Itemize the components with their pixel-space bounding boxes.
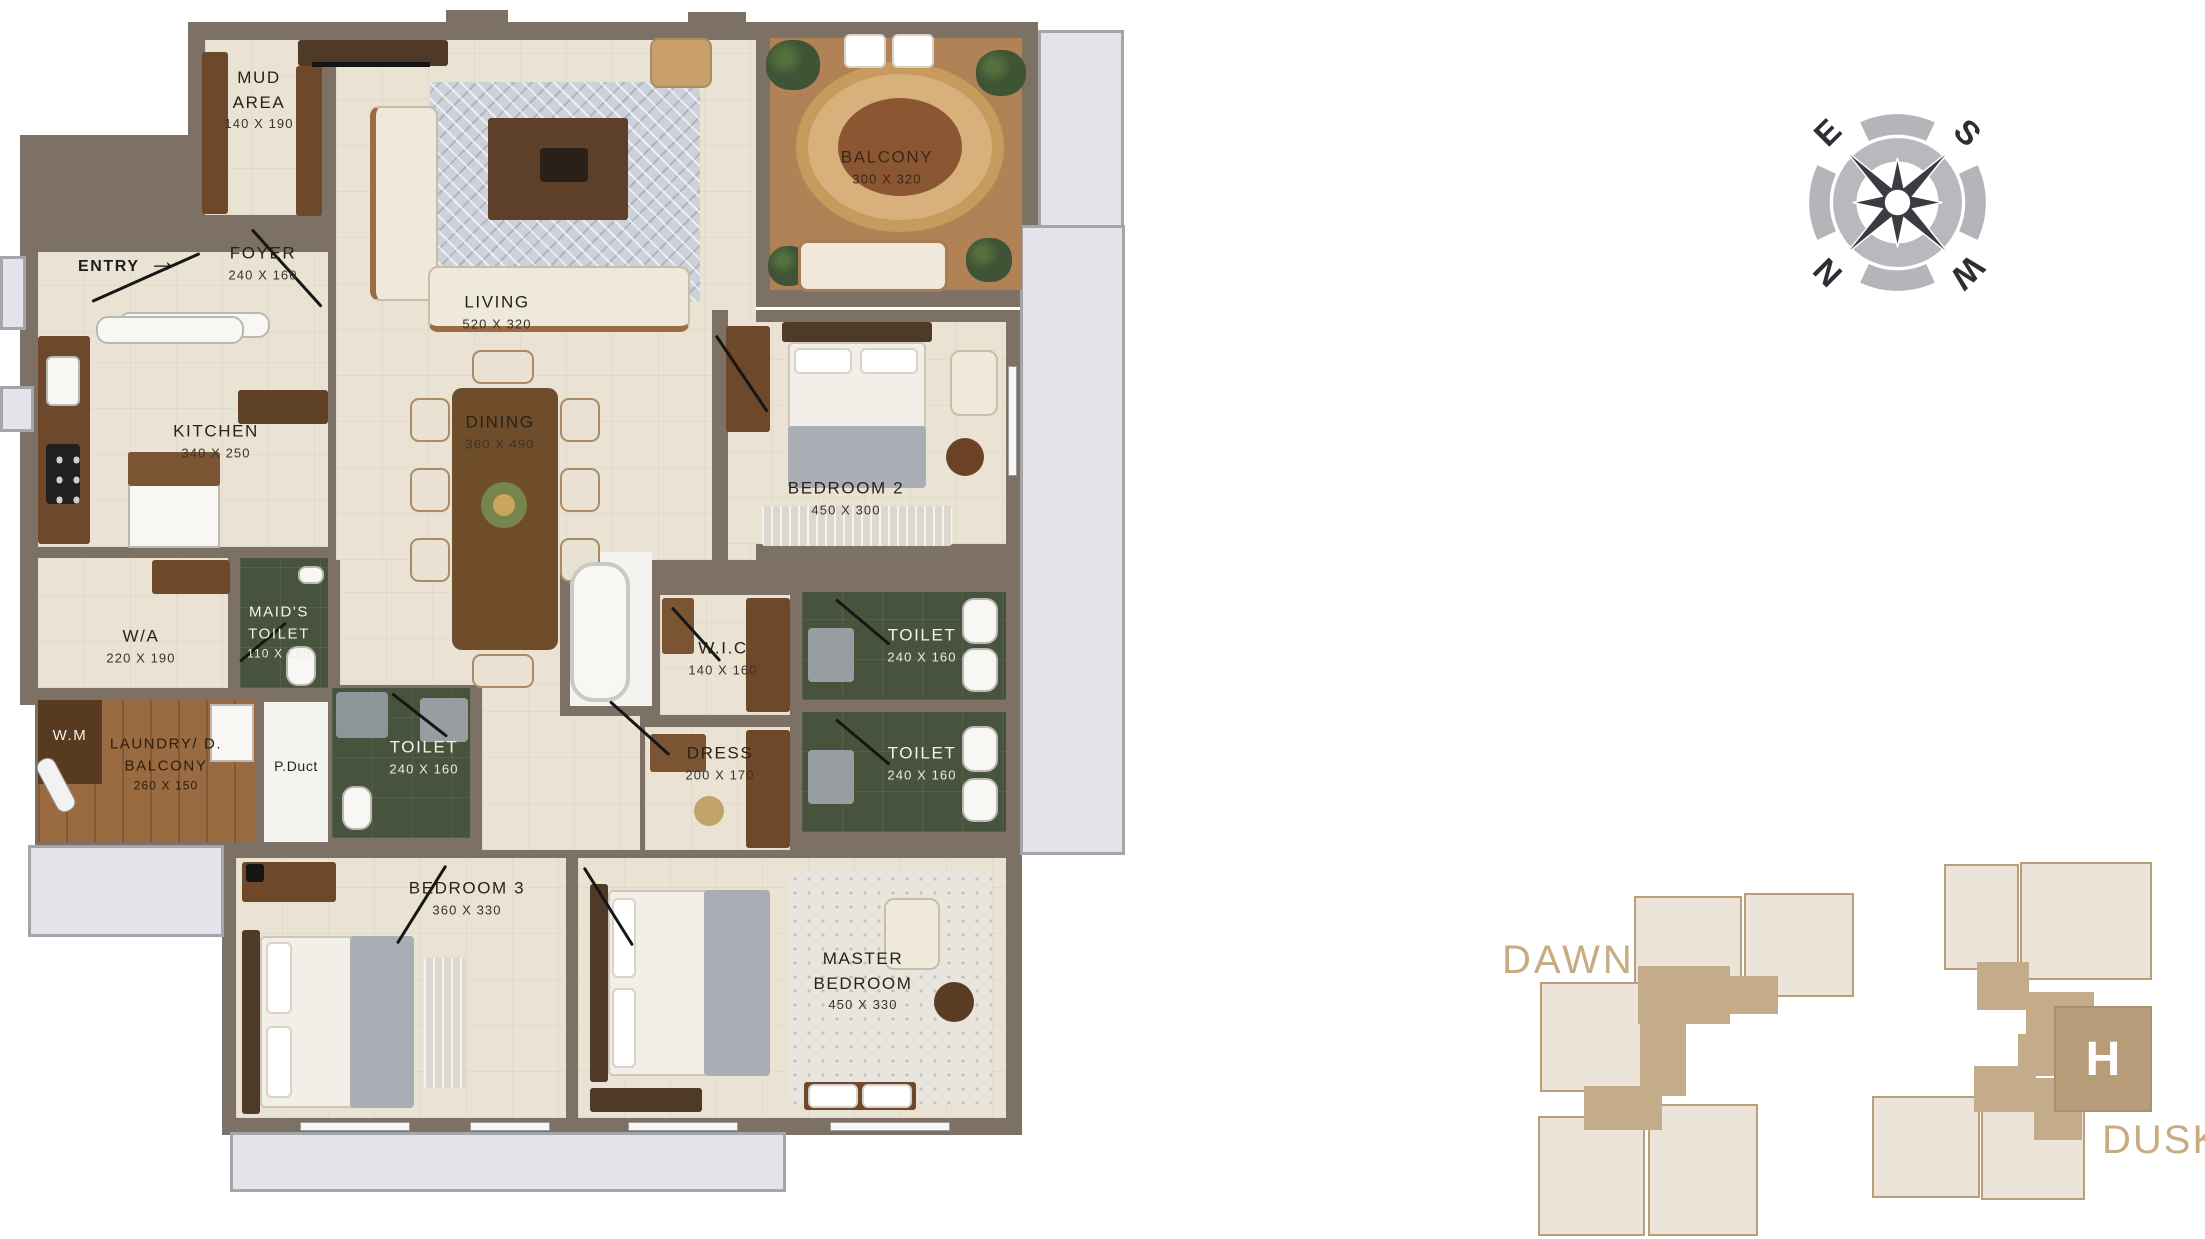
window-bottom-4	[830, 1122, 950, 1131]
master-pillow-2	[612, 988, 636, 1068]
dawn-unit-4	[1538, 1116, 1645, 1236]
tv-screen	[312, 62, 430, 67]
master-bench-cushion-1	[808, 1084, 858, 1108]
dawn-core-1	[1638, 966, 1730, 1024]
dawn-core-4	[1584, 1086, 1662, 1130]
mud-closet-right	[296, 66, 322, 216]
label-entry: ENTRY	[78, 258, 140, 276]
compass-center	[1885, 190, 1910, 215]
master-side-table	[934, 982, 974, 1022]
dining-centerpiece-pot	[493, 494, 515, 516]
label-dress: DRESS 200 X 170	[665, 741, 775, 784]
toilet-mid-wc	[342, 786, 372, 830]
label-wic: W.I.C 140 X 160	[668, 636, 778, 679]
dusk-unit-h-highlight: H	[2054, 1006, 2152, 1112]
bedroom2-side-table	[946, 438, 984, 476]
master-pillow-1	[612, 898, 636, 978]
balcony-bench	[798, 240, 948, 292]
dining-chair-bottom	[472, 654, 534, 688]
dusk-unit-3	[1872, 1096, 1980, 1198]
keyplan-dusk-label: DUSK	[2102, 1118, 2205, 1163]
dusk-unit-2	[2020, 862, 2152, 980]
bedroom2-headboard	[782, 322, 932, 342]
label-balcony: BALCONY 300 X 320	[807, 145, 967, 188]
kitchen-sink	[46, 356, 80, 406]
wall-column-bump-1	[446, 10, 508, 32]
bedroom3-blanket	[350, 936, 414, 1108]
balcony-plant-1	[766, 40, 820, 90]
living-armchair	[650, 38, 712, 88]
dining-chair-r2	[560, 468, 600, 512]
wa-cabinet	[152, 560, 230, 594]
master-headboard	[590, 884, 608, 1082]
balcony-cushion-1	[844, 34, 886, 68]
master-console	[590, 1088, 702, 1112]
window-bottom-2	[470, 1122, 550, 1131]
label-wm: W.M	[40, 725, 100, 747]
label-wa: W/A 220 X 190	[71, 624, 211, 667]
label-mud-area: MUD AREA 140 X 190	[219, 66, 299, 134]
outside-terrace-bottom	[230, 1132, 786, 1192]
maids-toilet-basin	[298, 566, 324, 584]
label-living: LIVING 520 X 320	[417, 290, 577, 333]
label-bedroom3: BEDROOM 3 360 X 330	[367, 876, 567, 919]
coffee-table-tray	[540, 148, 588, 182]
kitchen-cooktop	[46, 444, 80, 504]
bedroom3-pillow-1	[266, 942, 292, 1014]
dusk-core-4	[1974, 1066, 2036, 1112]
toilet-rb-vanity	[808, 750, 854, 804]
bedroom2-wardrobe	[726, 326, 770, 432]
bedroom3-plant-pot	[246, 864, 264, 882]
label-kitchen: KITCHEN 340 X 250	[136, 419, 296, 462]
label-toilet-mid: TOILET 240 X 160	[369, 735, 479, 778]
bathtub	[570, 562, 630, 702]
window-bottom-3	[628, 1122, 738, 1131]
dawn-core-2	[1728, 976, 1778, 1014]
outside-area-entry	[0, 256, 26, 330]
bedroom2-chair	[950, 350, 998, 416]
outside-area-bottom-left	[28, 845, 224, 937]
balcony-plant-3	[966, 238, 1012, 282]
entry-arrow-icon: →	[148, 252, 178, 272]
window-right-bedroom2	[1008, 366, 1017, 476]
master-blanket	[704, 890, 770, 1076]
bedroom2-pillow-2	[860, 348, 918, 374]
balcony-cushion-2	[892, 34, 934, 68]
dusk-unit-1	[1944, 864, 2019, 970]
compass-letter-e: E	[1807, 112, 1849, 154]
bedroom3-headboard	[242, 930, 260, 1114]
bedroom3-pillow-2	[266, 1026, 292, 1098]
label-toilet-right-bottom: TOILET 240 X 160	[867, 741, 977, 784]
toilet-rt-vanity	[808, 628, 854, 682]
unit-h-label: H	[2086, 1032, 2121, 1087]
dining-chair-top	[472, 350, 534, 384]
dusk-core-1	[1977, 962, 2029, 1010]
label-pduct: P.Duct	[261, 756, 331, 776]
dining-chair-l2	[410, 468, 450, 512]
label-maids-toilet: MAID'S TOILET 110 X 160	[237, 602, 321, 663]
wall-column-bump-2	[688, 12, 746, 30]
label-bedroom2: BEDROOM 2 450 X 300	[746, 476, 946, 519]
dawn-unit-5	[1648, 1104, 1758, 1236]
label-dining: DINING 360 X 490	[440, 410, 560, 453]
dawn-core-3	[1640, 1020, 1686, 1096]
master-bench-cushion-2	[862, 1084, 912, 1108]
balcony-plant-2	[976, 50, 1026, 96]
bedroom2-pillow-1	[794, 348, 852, 374]
label-foyer: FOYER 240 X 160	[193, 241, 333, 284]
outside-area-top-right	[1038, 30, 1124, 228]
compass-rose: S W N E	[1795, 100, 2000, 305]
label-master-bedroom: MASTER BEDROOM 450 X 330	[798, 947, 928, 1015]
compass-letter-s: S	[1946, 112, 1988, 154]
dress-pouf	[694, 796, 724, 826]
label-laundry: LAUNDRY/ D. BALCONY 260 X 150	[106, 734, 226, 795]
dining-chair-r1	[560, 398, 600, 442]
outside-balcony-right	[1020, 225, 1125, 855]
toilet-mid-shower	[336, 692, 388, 738]
kitchen-top-counter	[96, 316, 244, 344]
bedroom3-rug	[424, 958, 466, 1088]
outside-ledge-left	[0, 386, 34, 432]
window-bottom-1	[300, 1122, 410, 1131]
dining-chair-l3	[410, 538, 450, 582]
keyplan-dawn-label: DAWN	[1502, 938, 1635, 983]
compass-letter-n: N	[1807, 250, 1850, 293]
label-toilet-right-top: TOILET 240 X 160	[867, 623, 977, 666]
floorplan-page: MUD AREA 140 X 190 ENTRY → FOYER 240 X 1…	[0, 0, 2205, 1239]
